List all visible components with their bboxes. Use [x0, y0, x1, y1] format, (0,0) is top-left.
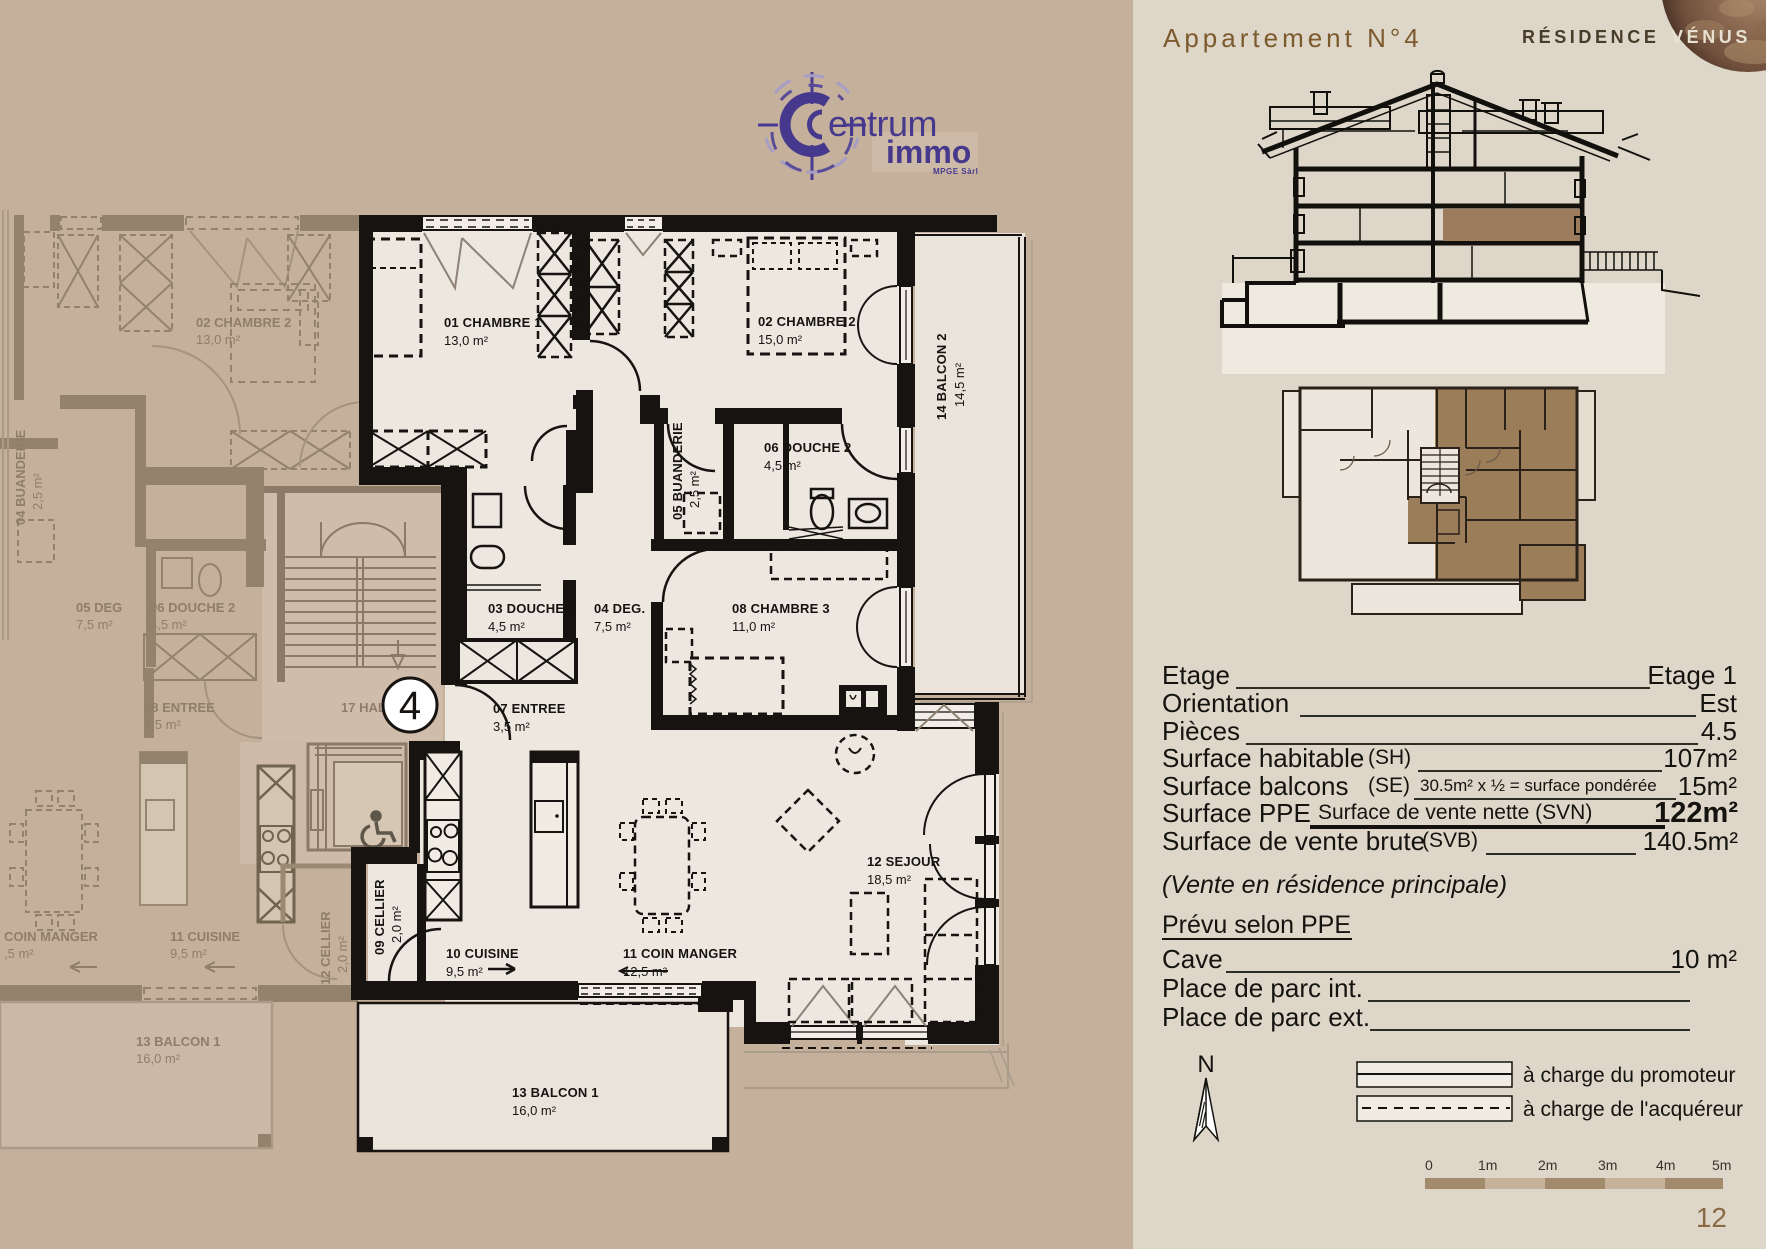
svg-text:Orientation: Orientation	[1162, 688, 1289, 718]
svg-text:(Vente en résidence principale: (Vente en résidence principale)	[1162, 871, 1507, 899]
svg-text:06 DOUCHE 2: 06 DOUCHE 2	[150, 600, 235, 615]
svg-text:4.5: 4.5	[1701, 716, 1737, 746]
svg-text:05 BUANDERIE: 05 BUANDERIE	[670, 422, 685, 520]
svg-text:4m: 4m	[1656, 1157, 1675, 1173]
svg-text:03 DOUCHE 1: 03 DOUCHE 1	[488, 601, 575, 616]
svg-text:3,5 m²: 3,5 m²	[144, 717, 182, 732]
svg-text:Surface habitable: Surface habitable	[1162, 743, 1364, 773]
svg-text:Place de parc int.: Place de parc int.	[1162, 973, 1363, 1003]
svg-text:immo: immo	[886, 134, 971, 170]
svg-text:08 ENTREE: 08 ENTREE	[144, 700, 215, 715]
svg-text:11 CUISINE: 11 CUISINE	[170, 929, 240, 944]
svg-text:02 CHAMBRE 2: 02 CHAMBRE 2	[758, 314, 856, 329]
svg-text:2,0 m²: 2,0 m²	[335, 935, 350, 973]
svg-text:14 BALCON 2: 14 BALCON 2	[934, 333, 949, 420]
svg-text:13,0 m²: 13,0 m²	[196, 332, 241, 347]
svg-text:Place de parc ext.: Place de parc ext.	[1162, 1002, 1370, 1032]
svg-text:16,0 m²: 16,0 m²	[136, 1051, 181, 1066]
svg-text:07 ENTREE: 07 ENTREE	[493, 701, 566, 716]
svg-text:30.5m² x ½ = surface pondérée: 30.5m² x ½ = surface pondérée	[1420, 776, 1657, 795]
svg-text:RÉSIDENCE: RÉSIDENCE	[1522, 26, 1659, 47]
svg-text:2,5 m²: 2,5 m²	[30, 472, 45, 510]
svg-text:05 DEG: 05 DEG	[76, 600, 122, 615]
svg-text:2m: 2m	[1538, 1157, 1557, 1173]
svg-text:04 BUANDERIE: 04 BUANDERIE	[13, 429, 28, 525]
svg-text:02 CHAMBRE 2: 02 CHAMBRE 2	[196, 315, 291, 330]
svg-text:3m: 3m	[1598, 1157, 1617, 1173]
svg-text:08 CHAMBRE 3: 08 CHAMBRE 3	[732, 601, 830, 616]
svg-text:1m: 1m	[1478, 1157, 1497, 1173]
svg-text:10 m²: 10 m²	[1671, 944, 1738, 974]
svg-text:Surface balcons: Surface balcons	[1162, 771, 1348, 801]
svg-text:12 CELLIER: 12 CELLIER	[318, 911, 333, 985]
svg-text:Etage: Etage	[1162, 660, 1230, 690]
svg-text:4,5 m²: 4,5 m²	[150, 617, 188, 632]
svg-text:à charge du promoteur: à charge du promoteur	[1523, 1064, 1735, 1087]
svg-text:04 DEG.: 04 DEG.	[594, 601, 645, 616]
svg-text:(SE): (SE)	[1368, 774, 1410, 797]
svg-text:18,5 m²: 18,5 m²	[867, 872, 912, 887]
svg-text:15,0 m²: 15,0 m²	[758, 332, 803, 347]
svg-text:Est: Est	[1699, 688, 1737, 718]
svg-text:9,5 m²: 9,5 m²	[170, 946, 208, 961]
svg-text:12 SEJOUR: 12 SEJOUR	[867, 854, 941, 869]
svg-text:2,0 m²: 2,0 m²	[389, 905, 404, 943]
svg-text:Surface PPE: Surface PPE	[1162, 798, 1311, 828]
svg-text:à charge de l'acquéreur: à charge de l'acquéreur	[1523, 1098, 1743, 1121]
svg-text:Prévu selon PPE: Prévu selon PPE	[1162, 911, 1351, 939]
svg-text:09 CELLIER: 09 CELLIER	[372, 879, 387, 955]
svg-text:10 CUISINE: 10 CUISINE	[446, 946, 519, 961]
svg-text:5m: 5m	[1712, 1157, 1731, 1173]
svg-text:140.5m²: 140.5m²	[1643, 826, 1739, 856]
svg-text:7,5 m²: 7,5 m²	[76, 617, 114, 632]
svg-text:107m²: 107m²	[1663, 743, 1737, 773]
svg-text:Pièces: Pièces	[1162, 716, 1240, 746]
svg-text:06 DOUCHE 2: 06 DOUCHE 2	[764, 440, 851, 455]
svg-text:16,0 m²: 16,0 m²	[512, 1103, 557, 1118]
svg-text:11 COIN MANGER: 11 COIN MANGER	[623, 946, 737, 961]
svg-text:14,5 m²: 14,5 m²	[952, 362, 967, 407]
svg-text:122m²: 122m²	[1654, 797, 1738, 829]
svg-text:VÉNUS: VÉNUS	[1671, 26, 1751, 47]
svg-text:Etage 1: Etage 1	[1647, 660, 1737, 690]
svg-text:Surface de vente brute: Surface de vente brute	[1162, 826, 1425, 856]
svg-text:4,5 m²: 4,5 m²	[488, 619, 526, 634]
svg-text:MPGE Sàrl: MPGE Sàrl	[933, 167, 978, 176]
svg-text:Appartement N°4: Appartement N°4	[1163, 23, 1423, 53]
svg-text:Surface de vente nette (SVN): Surface de vente nette (SVN)	[1318, 801, 1592, 824]
svg-text:(SVB): (SVB)	[1422, 829, 1478, 852]
svg-text:01 CHAMBRE 1: 01 CHAMBRE 1	[444, 315, 542, 330]
svg-text:N: N	[1197, 1051, 1214, 1078]
svg-text:9,5 m²: 9,5 m²	[446, 964, 484, 979]
svg-text:13,0 m²: 13,0 m²	[444, 333, 489, 348]
svg-text:4,5 m²: 4,5 m²	[764, 458, 802, 473]
svg-text:7,5 m²: 7,5 m²	[594, 619, 632, 634]
svg-text:3,5 m²: 3,5 m²	[493, 719, 531, 734]
svg-text:4: 4	[399, 684, 421, 728]
svg-text:,5 m²: ,5 m²	[4, 946, 34, 961]
svg-text:12: 12	[1696, 1202, 1727, 1233]
svg-text:11,0 m²: 11,0 m²	[732, 619, 776, 634]
svg-text:COIN MANGER: COIN MANGER	[4, 929, 99, 944]
svg-text:2,5 m²: 2,5 m²	[687, 470, 702, 508]
svg-text:13 BALCON 1: 13 BALCON 1	[512, 1085, 599, 1100]
svg-text:(SH): (SH)	[1368, 746, 1411, 769]
svg-text:13 BALCON 1: 13 BALCON 1	[136, 1034, 221, 1049]
svg-text:Cave: Cave	[1162, 944, 1223, 974]
svg-text:0: 0	[1425, 1157, 1433, 1173]
